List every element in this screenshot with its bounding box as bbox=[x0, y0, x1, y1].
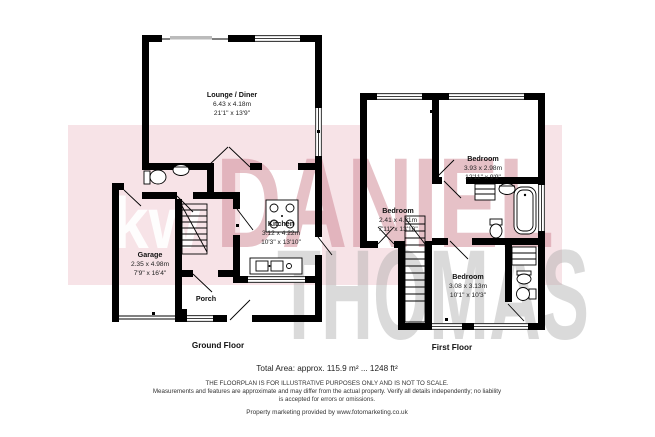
bathtub-icon bbox=[514, 187, 536, 234]
sink-icon bbox=[499, 184, 515, 195]
lounge-label: Lounge / Diner 6.43 x 4.18m 21'1" x 13'9… bbox=[207, 90, 258, 117]
disclaimer-line-1: THE FLOORPLAN IS FOR ILLUSTRATIVE PURPOS… bbox=[205, 380, 448, 387]
room-dim-metric: 2.35 x 4.98m bbox=[131, 261, 170, 268]
room-dim-imperial: 7'9" x 16'4" bbox=[134, 270, 167, 277]
room-dim-metric: 6.43 x 4.18m bbox=[213, 101, 252, 108]
sink-icon bbox=[173, 165, 189, 176]
disclaimer-line-3: is accepted for errors or omissions. bbox=[279, 396, 376, 403]
ground-floor-title: Ground Floor bbox=[192, 341, 245, 350]
toilet-icon bbox=[490, 219, 502, 238]
floorplan-image: kw DANIEL THOMAS bbox=[0, 0, 655, 437]
room-dim-metric: 2.41 x 4.21m bbox=[379, 217, 418, 224]
window bbox=[474, 323, 528, 330]
window bbox=[187, 315, 213, 322]
bedroom-top-right-label: Bedroom 3.93 x 2.98m 12'11" x 9'9" bbox=[464, 154, 503, 181]
window bbox=[255, 35, 300, 42]
room-name: Kitchen bbox=[268, 219, 294, 228]
window bbox=[430, 323, 462, 330]
first-floor-title: First Floor bbox=[432, 343, 473, 352]
room-dim-imperial: 10'1" x 10'3" bbox=[450, 292, 487, 299]
front-door-swing bbox=[230, 300, 250, 320]
marketing-credit: Property marketing provided by www.fotom… bbox=[246, 409, 408, 416]
window bbox=[538, 185, 545, 231]
room-dim-imperial: 7'11" x 13'10" bbox=[378, 226, 418, 233]
room-dim-imperial: 10'3" x 13'10" bbox=[261, 239, 301, 246]
window bbox=[377, 93, 422, 100]
room-dim-imperial: 21'1" x 13'9" bbox=[214, 110, 251, 117]
window bbox=[449, 93, 524, 100]
window bbox=[248, 276, 305, 283]
kitchen-sink-icon bbox=[250, 258, 302, 274]
bedroom-left-label: Bedroom 2.41 x 4.21m 7'11" x 13'10" bbox=[378, 206, 418, 233]
footer: Total Area: approx. 115.9 m² ... 1248 ft… bbox=[153, 364, 502, 416]
room-name: Lounge / Diner bbox=[207, 90, 258, 99]
toilet-icon bbox=[517, 288, 537, 301]
total-area-text: Total Area: approx. 115.9 m² ... 1248 ft… bbox=[256, 364, 398, 373]
room-name: Bedroom bbox=[452, 272, 484, 281]
room-dim-metric: 3.93 x 2.98m bbox=[464, 165, 503, 172]
cupboard-icon bbox=[512, 247, 536, 265]
room-dim-metric: 3.08 x 3.13m bbox=[449, 283, 488, 290]
room-dim-imperial: 12'11" x 9'9" bbox=[465, 174, 501, 181]
porch-label: Porch bbox=[196, 294, 216, 303]
room-name: Bedroom bbox=[382, 206, 414, 215]
room-name: Garage bbox=[138, 250, 163, 259]
disclaimer-line-2: Measurements and features are approximat… bbox=[153, 388, 502, 395]
floorplan-canvas: kw DANIEL THOMAS bbox=[0, 0, 655, 437]
bedroom-bottom-label: Bedroom 3.08 x 3.13m 10'1" x 10'3" bbox=[449, 272, 488, 299]
sink-icon bbox=[517, 271, 531, 284]
airing-cupboard-icon bbox=[475, 184, 495, 200]
room-dim-metric: 3.12 x 4.22m bbox=[262, 230, 301, 237]
room-name: Bedroom bbox=[467, 154, 499, 163]
toilet-icon bbox=[144, 170, 166, 184]
